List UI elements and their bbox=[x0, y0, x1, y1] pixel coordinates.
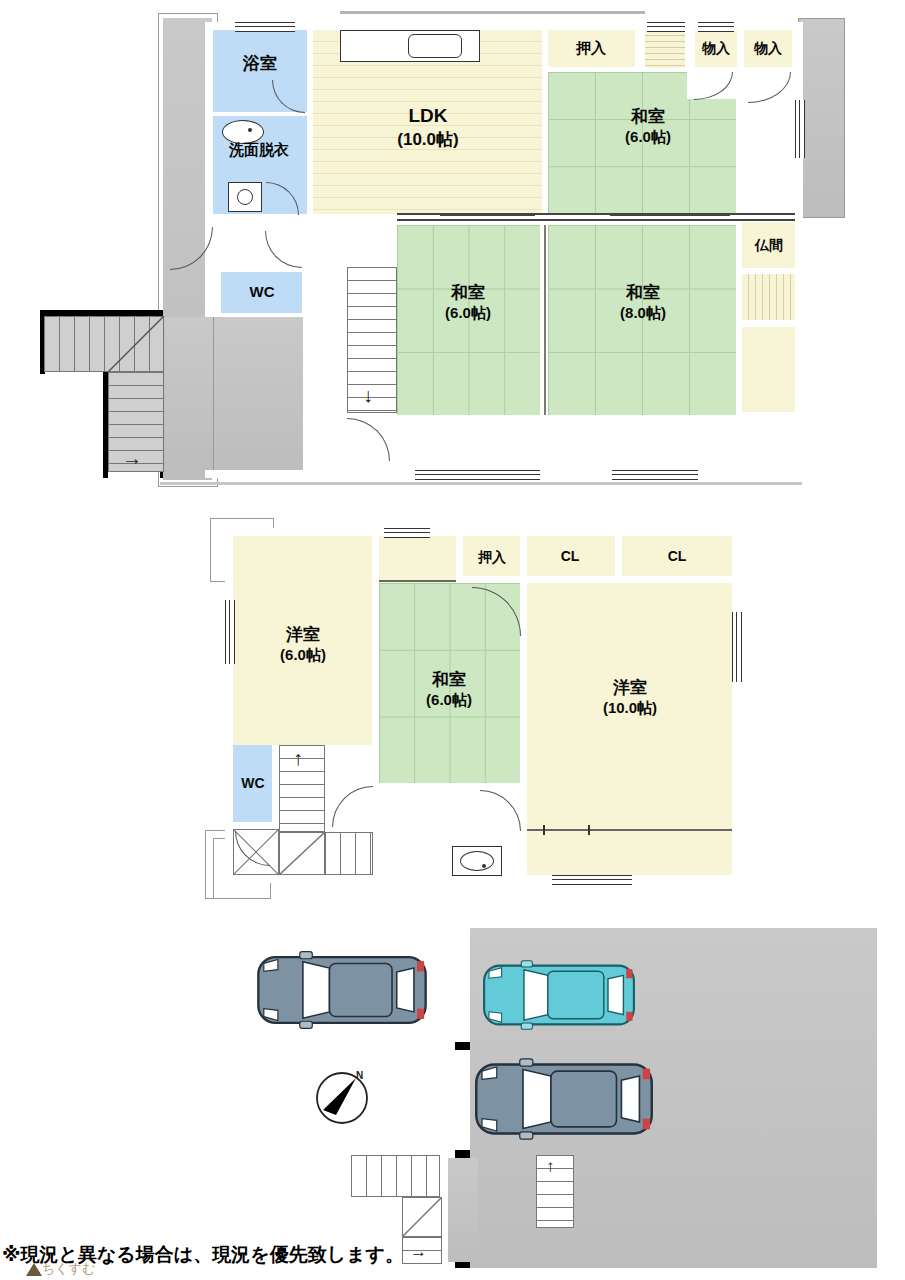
car-taillight bbox=[626, 969, 632, 978]
stairs-outdoor-arrow: → bbox=[122, 448, 142, 468]
room-label-washitsu1: 和室(6.0帖) bbox=[625, 107, 671, 148]
washing-machine-drain bbox=[237, 189, 253, 205]
car-taillight bbox=[417, 1009, 424, 1019]
room-label-cl2: CL bbox=[668, 548, 687, 565]
sliding-door-line bbox=[544, 225, 546, 415]
car-rear-window bbox=[608, 975, 623, 1014]
window bbox=[647, 22, 685, 32]
stairs-up-arrow-2f: ↑ bbox=[293, 748, 303, 768]
car-rear-window bbox=[397, 968, 414, 1012]
watermark-text: ちくすむ bbox=[42, 1260, 95, 1278]
entrance-doma bbox=[165, 317, 303, 470]
window bbox=[612, 470, 698, 480]
room-label-wc-1f: WC bbox=[250, 283, 275, 301]
watermark-logo bbox=[26, 1263, 42, 1276]
tokonoma-strip bbox=[742, 274, 795, 320]
window bbox=[415, 470, 540, 480]
room-label-mono2: 物入 bbox=[754, 40, 782, 57]
sliding-door-line bbox=[379, 580, 456, 582]
car-taillight bbox=[643, 1069, 650, 1080]
room-label-butsuma: 仏間 bbox=[755, 237, 783, 254]
window-tick bbox=[543, 825, 545, 835]
window bbox=[795, 100, 805, 158]
compass-north-label: N bbox=[356, 1070, 363, 1081]
car-teal-garage bbox=[482, 956, 636, 1034]
window bbox=[235, 22, 295, 32]
room-label-ldk: LDK(10.0帖) bbox=[397, 105, 458, 151]
room-label-oshiire-1f: 押入 bbox=[576, 39, 606, 57]
strip-above-washitsu-2f bbox=[379, 536, 456, 583]
room-label-oshiire-2f: 押入 bbox=[478, 549, 506, 566]
compass-icon: N bbox=[312, 1066, 374, 1128]
room-label-washitsu3: 和室(8.0帖) bbox=[620, 283, 666, 324]
shelf-strip-1f bbox=[645, 30, 685, 68]
window bbox=[552, 875, 632, 885]
stairs-outdoor-diagonal bbox=[108, 316, 164, 372]
car-gray-garage bbox=[472, 1058, 656, 1140]
closet-right-1f bbox=[742, 327, 795, 412]
car-mirror bbox=[520, 1059, 533, 1066]
floor-plan-page: ↓ → bbox=[0, 0, 905, 1280]
room-label-mono1: 物入 bbox=[702, 40, 730, 57]
car-rear-window bbox=[621, 1076, 639, 1122]
car-windshield bbox=[523, 1069, 551, 1128]
stairs-garage-L-diagonal bbox=[402, 1197, 442, 1237]
car-windshield bbox=[303, 962, 330, 1018]
washbasin-drain-2f bbox=[482, 864, 486, 868]
room-label-washitsu-2f: 和室(6.0帖) bbox=[426, 670, 472, 711]
stairs-2f-lower bbox=[325, 832, 373, 875]
exterior-walkway-1f-right bbox=[798, 18, 845, 218]
room-label-washitsu2: 和室(6.0帖) bbox=[445, 283, 491, 324]
kitchen-sink bbox=[408, 34, 462, 58]
car-taillight bbox=[417, 961, 424, 971]
stairs-garage-straight bbox=[536, 1155, 574, 1228]
room-label-bathroom: 浴室 bbox=[243, 54, 277, 74]
stairs-down-arrow-1f: ↓ bbox=[363, 385, 373, 405]
car-mirror bbox=[521, 961, 532, 967]
car-taillight bbox=[626, 1012, 632, 1021]
sliding-door-panels bbox=[610, 215, 730, 220]
eave-line-1f-top bbox=[340, 11, 645, 14]
window bbox=[732, 612, 742, 682]
doma-divider-line bbox=[213, 317, 214, 470]
veranda-divider-line bbox=[527, 829, 732, 831]
stairs-2f-diagonal bbox=[279, 832, 325, 875]
washbasin-drain-1f bbox=[248, 128, 252, 132]
eave-line-1f-bottom bbox=[160, 482, 802, 485]
room-label-yoshitsu10: 洋室(10.0帖) bbox=[603, 678, 657, 719]
room-yoshitsu10 bbox=[527, 583, 732, 875]
car-gray-driveway bbox=[256, 950, 428, 1030]
room-label-yoshitsu6: 洋室(6.0帖) bbox=[280, 625, 326, 666]
room-label-washroom: 洗面脱衣 bbox=[229, 141, 289, 159]
car-taillight bbox=[643, 1119, 650, 1130]
sliding-door-panels bbox=[440, 215, 535, 220]
window-tick bbox=[588, 825, 590, 835]
car-mirror bbox=[521, 1023, 532, 1029]
window bbox=[384, 528, 430, 538]
room-label-cl1: CL bbox=[561, 548, 580, 565]
washbasin-2f bbox=[460, 851, 494, 871]
stairs-garage-L-arrow: → bbox=[410, 1243, 427, 1260]
garage-area-extension bbox=[448, 1158, 478, 1262]
car-mirror bbox=[300, 1021, 313, 1028]
window bbox=[698, 22, 734, 32]
room-label-wc-2f: WC bbox=[241, 775, 264, 792]
car-mirror bbox=[520, 1132, 533, 1139]
stairs-up-arrow-garage: ↑ bbox=[546, 1158, 555, 1175]
window bbox=[225, 600, 235, 664]
car-windshield bbox=[524, 970, 548, 1020]
car-mirror bbox=[300, 952, 313, 959]
stairs-garage-L-upper bbox=[351, 1155, 440, 1197]
